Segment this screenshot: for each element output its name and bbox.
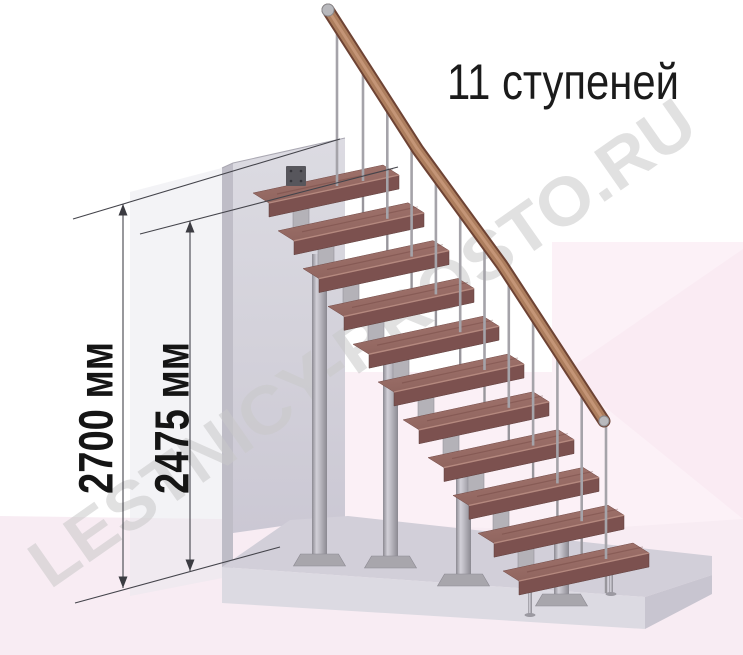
- column-base-plate: [536, 594, 588, 606]
- column-base-plate: [438, 574, 490, 586]
- baluster: [605, 424, 608, 559]
- baluster: [362, 64, 365, 181]
- arrow-up-icon: [119, 204, 128, 216]
- baluster: [435, 175, 438, 295]
- bracket-hole: [290, 170, 293, 173]
- dimension-label-2700: 2700 мм: [70, 342, 123, 494]
- baluster: [508, 275, 511, 407]
- baluster: [459, 208, 462, 332]
- baluster: [336, 24, 339, 186]
- tread-leg: [528, 590, 532, 614]
- support-column: [312, 254, 327, 558]
- bracket-hole: [300, 180, 303, 183]
- step-count-title: 11 ступеней: [447, 54, 679, 110]
- baluster: [556, 350, 559, 484]
- leg-foot: [525, 613, 536, 617]
- bracket-hole: [290, 180, 293, 183]
- baluster: [483, 241, 486, 370]
- baluster: [532, 313, 535, 446]
- baluster: [410, 140, 413, 257]
- baluster: [386, 102, 389, 219]
- column-base-plate: [294, 554, 346, 566]
- dimension-label-2475: 2475 мм: [146, 342, 199, 494]
- staircase-diagram: LESTNICY-PROSTO.RU 2700 мм 2475 мм 11 ст…: [0, 0, 743, 655]
- bracket-hole: [300, 170, 303, 173]
- wall-bracket-plate: [286, 166, 306, 186]
- handrail-top-cap: [322, 4, 334, 16]
- tread-leg: [609, 574, 613, 593]
- handrail-end-cap: [599, 416, 609, 426]
- column-base-plate: [365, 556, 417, 568]
- canvas: LESTNICY-PROSTO.RU 2700 мм 2475 мм 11 ст…: [0, 0, 743, 655]
- wall-side-face: [222, 163, 233, 580]
- baluster: [580, 387, 583, 521]
